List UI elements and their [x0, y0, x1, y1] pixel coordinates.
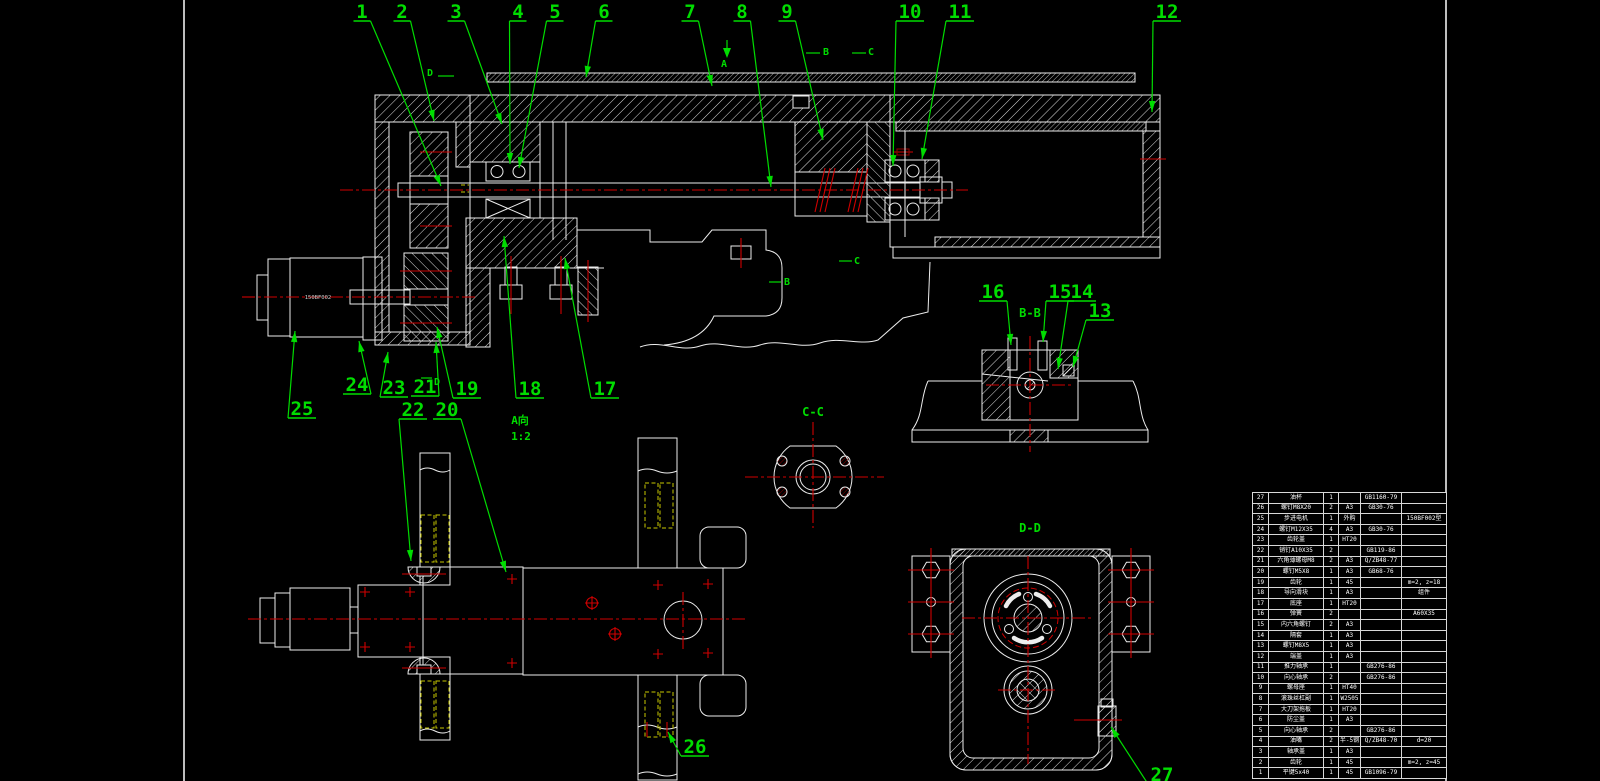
plan-view: [248, 438, 746, 780]
svg-text:17: 17: [594, 378, 617, 400]
bom-row-7: 7大刀架拖板1HT20: [1253, 704, 1447, 715]
svg-text:1: 1: [356, 1, 367, 23]
callout-20: 20: [433, 399, 506, 572]
svg-text:11: 11: [949, 1, 972, 23]
bom-table: 27油杯1GB1160-7926螺钉M8X202A3GB30-7625步进电机1…: [1252, 492, 1447, 779]
callout-10: 10: [890, 1, 924, 166]
bom-row-25: 25步进电机1外购150BF002型: [1253, 514, 1447, 525]
bom-row-26: 26螺钉M8X202A3GB30-76: [1253, 503, 1447, 514]
bom-row-6: 6防尘盖1A3: [1253, 715, 1447, 726]
bom-row-20: 20螺钉M5X81A3GB68-76: [1253, 567, 1447, 578]
bom-row-1: 1平键5x40145GB1096-79: [1253, 768, 1447, 779]
callout-8: 8: [734, 1, 773, 187]
svg-text:15: 15: [1049, 281, 1072, 303]
section-cc-view: [745, 422, 884, 528]
svg-text:10: 10: [899, 1, 922, 23]
svg-text:25: 25: [291, 398, 314, 420]
svg-text:22: 22: [402, 399, 425, 421]
bom-row-2: 2齿轮145m=2, z=45: [1253, 757, 1447, 768]
callout-16: 16: [979, 281, 1013, 345]
bom-row-4: 4油嘴2半-5钢Q/ZB48-70d=20: [1253, 736, 1447, 747]
bom-row-9: 9螺母座1HT40: [1253, 683, 1447, 694]
bom-row-15: 15内六角螺钉2A3: [1253, 620, 1447, 631]
section-marker-b-top: B: [823, 47, 829, 58]
bom-row-16: 16弹簧2A60X35: [1253, 609, 1447, 620]
svg-text:13: 13: [1089, 300, 1112, 322]
section-marker-c-bottom: C: [854, 256, 860, 267]
view-a-arrow: [723, 48, 731, 58]
svg-text:19: 19: [456, 378, 479, 400]
bom-row-5: 5向心轴承2GB276-86: [1253, 726, 1447, 737]
svg-text:16: 16: [982, 281, 1005, 303]
bom-row-12: 12端盖1A3: [1253, 651, 1447, 662]
callout-26: 26: [668, 732, 709, 758]
main-assembly-view: [242, 40, 1166, 378]
svg-text:14: 14: [1071, 281, 1094, 303]
callout-22: 22: [399, 399, 427, 561]
view-label-a-scale: 1:2: [511, 430, 531, 443]
view-label-bb: B-B: [1019, 306, 1041, 320]
callout-21: 21: [411, 342, 440, 398]
cad-canvas: A向 1:2 B-B C-C D-D D A B C B C D 150BF00…: [0, 0, 1600, 781]
svg-text:9: 9: [781, 1, 792, 23]
bom-row-11: 11推力轴承1GB276-86: [1253, 662, 1447, 673]
bom-row-23: 23齿轮盖1HT20: [1253, 535, 1447, 546]
section-marker-d-top: D: [427, 68, 433, 79]
bom-row-8: 8滚珠丝杠副1W2505: [1253, 694, 1447, 705]
svg-text:3: 3: [450, 1, 461, 23]
bom-row-22: 22销钉A10X352GB119-86: [1253, 545, 1447, 556]
svg-text:6: 6: [598, 1, 609, 23]
svg-text:5: 5: [549, 1, 560, 23]
bom-row-18: 18导向滑块1A3组件: [1253, 588, 1447, 599]
view-arrow-label-a: A: [721, 59, 727, 70]
bom-row-27: 27油杯1GB1160-79: [1253, 493, 1447, 504]
svg-text:8: 8: [736, 1, 747, 23]
svg-text:4: 4: [512, 1, 523, 23]
section-bb-view: [912, 336, 1148, 452]
bom-row-10: 10向心轴承2GB276-86: [1253, 673, 1447, 684]
parts-table: 27油杯1GB1160-7926螺钉M8X202A3GB30-7625步进电机1…: [1252, 492, 1447, 779]
svg-text:20: 20: [436, 399, 459, 421]
svg-text:12: 12: [1156, 1, 1179, 23]
callout-6: 6: [585, 1, 613, 77]
section-marker-c-top: C: [868, 47, 874, 58]
svg-text:21: 21: [414, 376, 437, 398]
svg-text:24: 24: [346, 374, 369, 396]
svg-text:26: 26: [684, 736, 707, 758]
view-label-cc: C-C: [802, 405, 824, 419]
bom-row-21: 21六角薄螺母M82A3Q/ZB48-77: [1253, 556, 1447, 567]
callout-15: 15: [1041, 281, 1074, 342]
callout-27: 27: [1111, 727, 1176, 781]
hole-marks: [360, 574, 713, 668]
bom-row-24: 24螺钉M12X354A3GB30-76: [1253, 524, 1447, 535]
svg-text:23: 23: [383, 377, 406, 399]
svg-text:2: 2: [396, 1, 407, 23]
callout-25: 25: [288, 331, 316, 420]
view-label-a: A向: [511, 413, 529, 427]
callout-13: 13: [1073, 300, 1114, 367]
view-label-dd: D-D: [1019, 521, 1041, 535]
bom-row-17: 17底座1HT20: [1253, 598, 1447, 609]
svg-text:27: 27: [1151, 764, 1174, 781]
svg-text:18: 18: [519, 378, 542, 400]
callout-23: 23: [380, 352, 408, 399]
motor-model-label: 150BF002: [305, 295, 332, 301]
callout-24: 24: [343, 341, 371, 396]
bom-row-13: 13螺钉M8X51A3: [1253, 641, 1447, 652]
section-marker-b-bottom: B: [784, 277, 790, 288]
bom-row-3: 3轴承盖1A3: [1253, 747, 1447, 758]
bom-row-14: 14隔套1A3: [1253, 630, 1447, 641]
bom-row-19: 19齿轮145m=2, z=18: [1253, 577, 1447, 588]
svg-text:7: 7: [684, 1, 695, 23]
